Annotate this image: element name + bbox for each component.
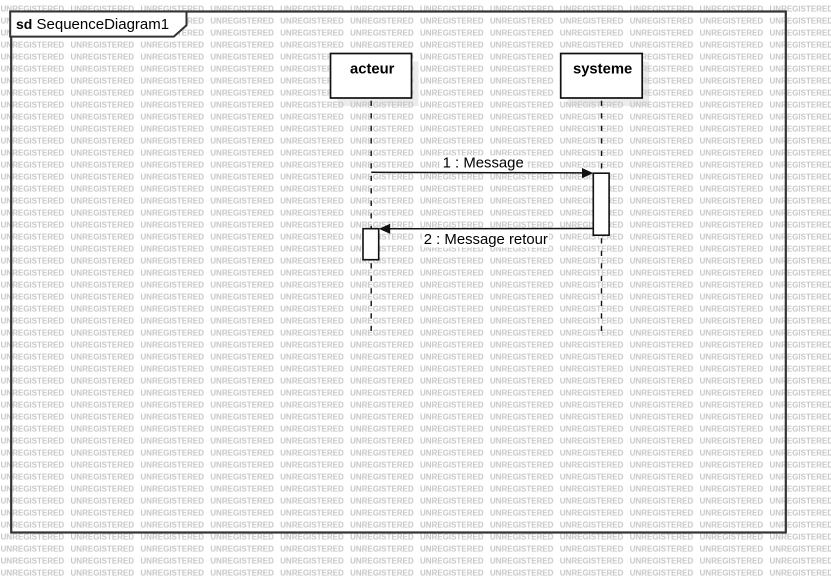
svg-text:systeme: systeme bbox=[573, 62, 632, 78]
svg-text:2 : Message retour: 2 : Message retour bbox=[424, 232, 548, 248]
svg-text:1 : Message: 1 : Message bbox=[443, 156, 524, 172]
svg-text:acteur: acteur bbox=[350, 62, 395, 78]
svg-text:sd SequenceDiagram1: sd SequenceDiagram1 bbox=[16, 16, 169, 33]
